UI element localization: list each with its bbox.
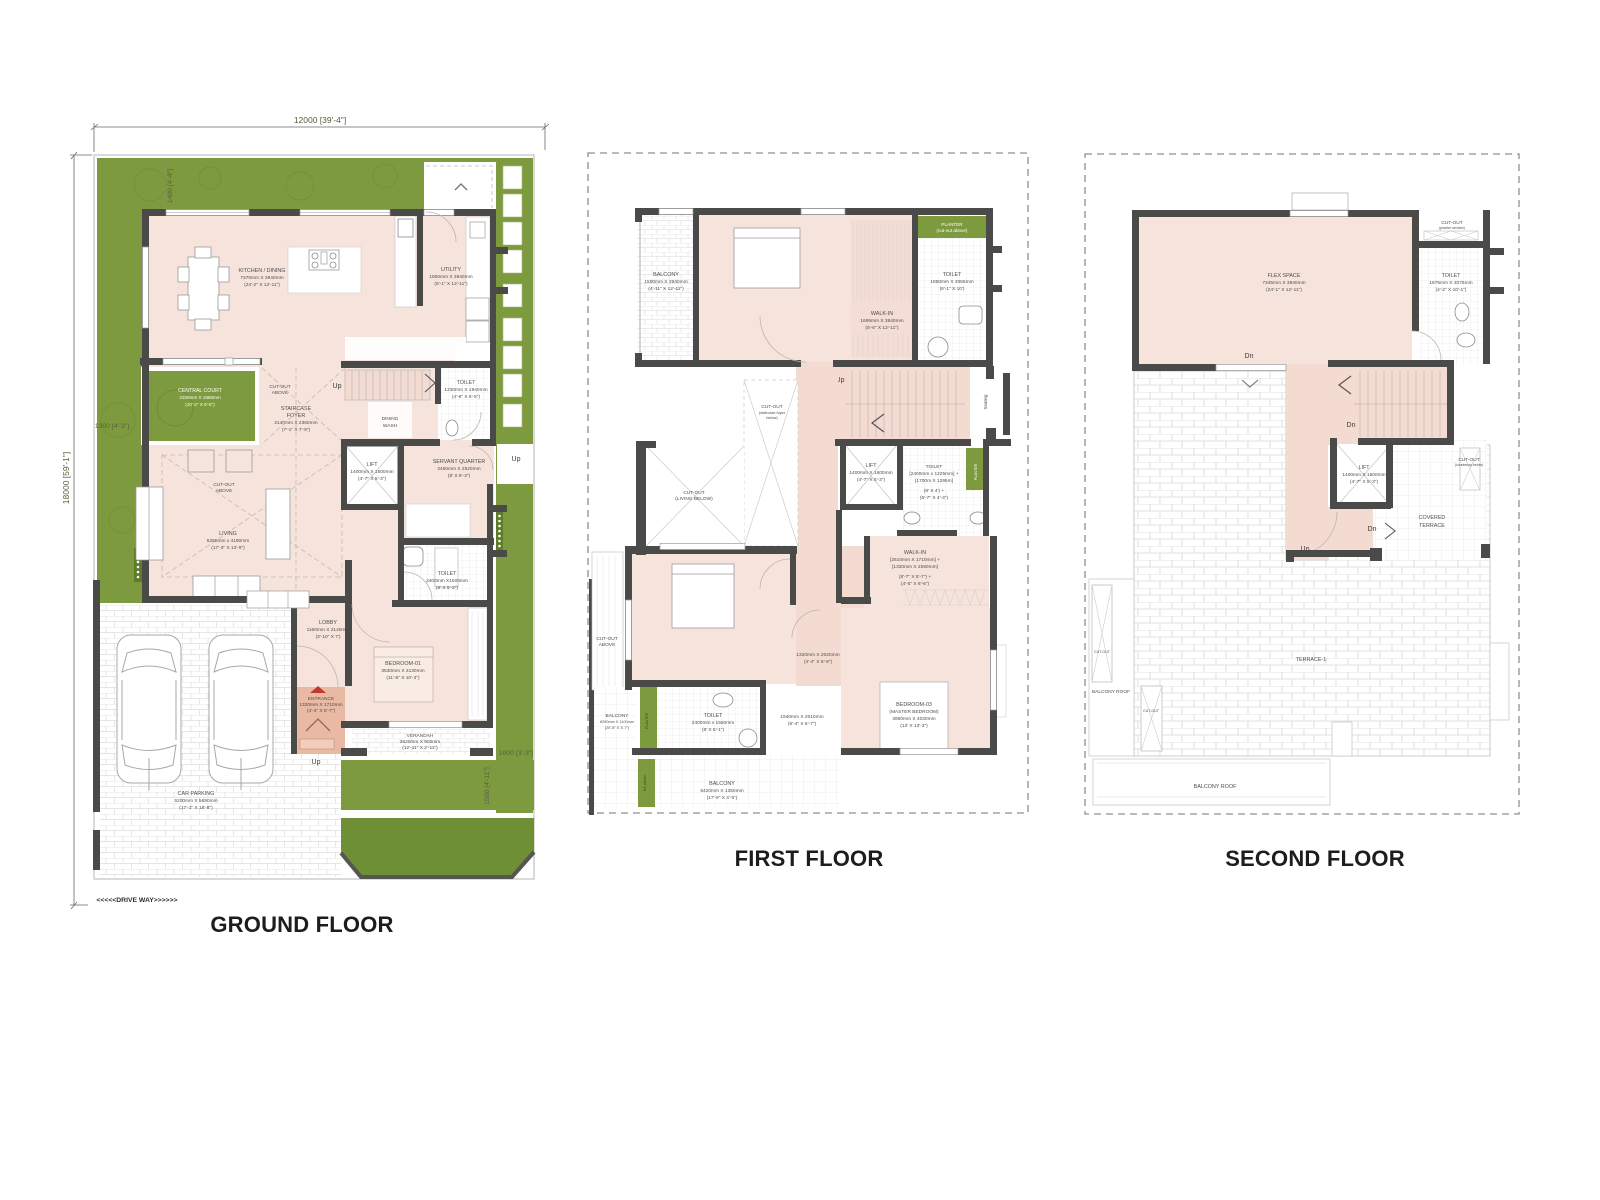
svg-text:1000 [3'-3"]: 1000 [3'-3"] — [499, 750, 533, 757]
svg-text:2400mm X1500mm: 2400mm X1500mm — [426, 578, 468, 584]
svg-text:CENTRAL COURT: CENTRAL COURT — [178, 388, 223, 394]
svg-text:TOILET: TOILET — [926, 464, 943, 470]
svg-text:LIVING: LIVING — [219, 531, 237, 537]
svg-text:2400mm x 1550mm: 2400mm x 1550mm — [692, 720, 734, 726]
svg-text:(24'-2" X 12'-11"): (24'-2" X 12'-11") — [244, 282, 280, 288]
svg-text:1330mm X 1940mm: 1330mm X 1940mm — [444, 387, 487, 393]
svg-text:3920mm X 900mm: 3920mm X 900mm — [400, 739, 441, 745]
svg-text:WALK-IN: WALK-IN — [871, 311, 893, 317]
svg-text:(17'-1" X 18'-8"): (17'-1" X 18'-8") — [179, 805, 213, 811]
svg-text:1400mm X 1600mm: 1400mm X 1600mm — [1342, 472, 1385, 478]
svg-text:(11'-8" X 10'-3"): (11'-8" X 10'-3") — [386, 675, 420, 681]
svg-text:(8' X 5'-2"): (8' X 5'-2") — [436, 585, 459, 591]
svg-text:(6'-4" X 6'-7"): (6'-4" X 6'-7") — [788, 721, 817, 727]
svg-text:7345mm X 3940mm: 7345mm X 3940mm — [1262, 280, 1305, 286]
svg-text:18000 [59'-1"]: 18000 [59'-1"] — [61, 452, 71, 504]
svg-text:(4'-7" X 5'-3"): (4'-7" X 5'-3") — [857, 477, 886, 483]
svg-text:1500 [4'-11"]: 1500 [4'-11"] — [484, 767, 491, 805]
svg-text:(17'-3" X 13'-9"): (17'-3" X 13'-9") — [211, 545, 245, 551]
svg-text:1400mm X 1600mm: 1400mm X 1600mm — [350, 469, 393, 475]
svg-text:7370mm X 3940mm: 7370mm X 3940mm — [240, 275, 283, 281]
svg-text:LIFT: LIFT — [1358, 465, 1370, 471]
svg-text:5200mm X 5690mm: 5200mm X 5690mm — [174, 798, 217, 804]
svg-text:(17'-9" X 4'-5"): (17'-9" X 4'-5") — [707, 795, 738, 801]
svg-text:ABOVE: ABOVE — [272, 390, 289, 396]
svg-text:TOILET: TOILET — [438, 571, 457, 577]
svg-text:BALCONY ROOF: BALCONY ROOF — [1092, 689, 1130, 695]
svg-text:GROUND FLOOR: GROUND FLOOR — [210, 912, 393, 937]
svg-text:Dn: Dn — [1245, 353, 1254, 360]
svg-text:TOILET: TOILET — [943, 272, 962, 278]
svg-text:BEDROOM-03: BEDROOM-03 — [896, 702, 932, 708]
svg-text:SECOND FLOOR: SECOND FLOOR — [1225, 846, 1405, 871]
svg-text:LIFT: LIFT — [865, 463, 877, 469]
svg-text:Up: Up — [512, 456, 521, 463]
svg-text:TOILET: TOILET — [704, 713, 723, 719]
svg-text:(4'-11" X 12'-11"): (4'-11" X 12'-11") — [648, 286, 684, 292]
svg-text:(cut-out above): (cut-out above) — [937, 228, 968, 233]
svg-text:VERANDAH: VERANDAH — [407, 733, 434, 739]
svg-text:[2610mm X 1710mm] +: [2610mm X 1710mm] + — [890, 557, 940, 563]
svg-text:1850mm X 3055mm: 1850mm X 3055mm — [930, 279, 973, 285]
svg-text:1500mm X 3940mm: 1500mm X 3940mm — [644, 279, 687, 285]
svg-text:CUT-OUT: CUT-OUT — [683, 490, 704, 496]
svg-text:(8' X 4') +: (8' X 4') + — [924, 488, 945, 494]
svg-text:below): below) — [766, 416, 778, 420]
svg-text:PLANTER: PLANTER — [645, 712, 649, 729]
svg-text:KITCHEN / DINING: KITCHEN / DINING — [238, 268, 285, 274]
svg-text:(6'-1" X 10'): (6'-1" X 10') — [940, 286, 965, 292]
svg-text:FIRST FLOOR: FIRST FLOOR — [735, 846, 884, 871]
svg-text:(6'-1" X 12'-11"): (6'-1" X 12'-11") — [434, 281, 468, 287]
svg-text:[1700m X 1295m]: [1700m X 1295m] — [915, 478, 953, 484]
svg-text:CUT-OUT: CUT-OUT — [213, 482, 234, 488]
svg-text:3100mm X 1960mm: 3100mm X 1960mm — [179, 395, 221, 400]
svg-text:CUT-OUT: CUT-OUT — [596, 636, 617, 642]
svg-text:[1330mm X 2590mm]: [1330mm X 2590mm] — [892, 564, 938, 570]
svg-text:6290mm X 1100mm: 6290mm X 1100mm — [600, 720, 634, 724]
svg-text:LOBBY: LOBBY — [319, 620, 337, 626]
svg-text:TERRACE-1: TERRACE-1 — [1296, 657, 1327, 663]
svg-text:Dn: Dn — [1368, 526, 1377, 533]
svg-text:12000 [39'-4"]: 12000 [39'-4"] — [294, 115, 346, 125]
svg-text:[2400mm x 1225mm] +: [2400mm x 1225mm] + — [909, 471, 958, 477]
svg-text:(8'-7" X 5'-7") +: (8'-7" X 5'-7") + — [899, 574, 931, 580]
svg-text:1400mm X 1600mm: 1400mm X 1600mm — [849, 470, 892, 476]
svg-text:Seating: Seating — [983, 394, 988, 409]
svg-text:1160mm X 2140mm: 1160mm X 2140mm — [307, 627, 350, 633]
svg-text:(5'-6" X 12'-11"): (5'-6" X 12'-11") — [865, 325, 899, 331]
svg-text:BALCONY ROOF: BALCONY ROOF — [1194, 784, 1237, 790]
svg-text:1875mm X 3075mm: 1875mm X 3075mm — [1429, 280, 1472, 286]
svg-text:(10'-2" X 6'-5"): (10'-2" X 6'-5") — [185, 402, 215, 407]
svg-text:(8' X 8'-3"): (8' X 8'-3") — [448, 473, 471, 479]
svg-text:FLEX SPACE: FLEX SPACE — [1268, 273, 1301, 279]
svg-text:CUT-OUT: CUT-OUT — [1143, 709, 1160, 713]
svg-text:BALCONY: BALCONY — [606, 713, 630, 719]
svg-text:(3'-10" X 7'): (3'-10" X 7') — [316, 634, 341, 640]
svg-text:CAR PARKING: CAR PARKING — [178, 791, 215, 797]
svg-text:(LIVING BELOW): (LIVING BELOW) — [675, 496, 713, 502]
svg-text:ABOVE: ABOVE — [599, 642, 616, 648]
svg-text:PLANTER: PLANTER — [974, 463, 978, 480]
svg-text:(13' X 13'-3"): (13' X 13'-3") — [900, 723, 928, 729]
svg-text:<<<<<DRIVE WAY>>>>>>: <<<<<DRIVE WAY>>>>>> — [96, 897, 177, 904]
svg-text:5260mm x 4190mm: 5260mm x 4190mm — [207, 538, 249, 544]
svg-text:1320mm X 2020mm: 1320mm X 2020mm — [796, 652, 839, 658]
svg-text:DINING: DINING — [382, 416, 399, 422]
svg-text:TERRACE: TERRACE — [1419, 523, 1445, 529]
svg-text:WASH: WASH — [383, 423, 398, 429]
svg-text:5420mm X 1350mm: 5420mm X 1350mm — [700, 788, 743, 794]
svg-text:3530mm X 3130mm: 3530mm X 3130mm — [381, 668, 424, 674]
svg-text:UTILITY: UTILITY — [441, 267, 461, 273]
svg-text:1300 [4'-3"]: 1300 [4'-3"] — [95, 423, 129, 430]
svg-text:CUT-OUT: CUT-OUT — [761, 404, 782, 410]
svg-text:(MASTER BEDROOM): (MASTER BEDROOM) — [889, 709, 939, 715]
svg-text:ENTRANCE: ENTRANCE — [308, 696, 334, 702]
svg-text:ABOVE: ABOVE — [216, 488, 233, 494]
svg-text:BEDROOM-01: BEDROOM-01 — [385, 661, 421, 667]
svg-text:SERVANT QUARTER: SERVANT QUARTER — [433, 459, 486, 465]
svg-text:TOILET: TOILET — [457, 380, 476, 386]
svg-text:CUT-OUT: CUT-OUT — [1094, 650, 1111, 654]
svg-text:PLANTER: PLANTER — [941, 222, 963, 227]
svg-text:2460mm X 2520mm: 2460mm X 2520mm — [437, 466, 480, 472]
svg-text:3960mm X 4030mm: 3960mm X 4030mm — [892, 716, 935, 722]
svg-text:1940mm X 2010mm: 1940mm X 2010mm — [780, 714, 823, 720]
svg-text:(4'-4" X 6'-8"): (4'-4" X 6'-8") — [804, 659, 833, 665]
svg-text:Dn: Dn — [1347, 422, 1356, 429]
svg-text:Up: Up — [333, 383, 342, 390]
svg-text:(staircase foyer: (staircase foyer — [759, 411, 786, 415]
svg-text:COVERED: COVERED — [1419, 515, 1446, 521]
svg-text:Up: Up — [312, 759, 321, 766]
svg-text:(4'-7" X 5'-3"): (4'-7" X 5'-3") — [358, 476, 387, 482]
svg-text:BALCONY: BALCONY — [709, 781, 735, 787]
svg-text:(4'-2" X 10'-1"): (4'-2" X 10'-1") — [1436, 287, 1467, 293]
svg-text:(24'-1" X 12'-11"): (24'-1" X 12'-11") — [1266, 287, 1302, 293]
svg-text:(4'-4" X 5'-7"): (4'-4" X 5'-7") — [307, 708, 336, 714]
svg-text:(12'-11" X 2'-11"): (12'-11" X 2'-11") — [402, 745, 438, 751]
svg-text:(20'-8" X 3'-7"): (20'-8" X 3'-7") — [605, 726, 630, 730]
svg-text:WALK-IN: WALK-IN — [904, 550, 926, 556]
svg-text:(8' X 5'-1"): (8' X 5'-1") — [702, 727, 725, 733]
svg-text:(5'-7" X 4'-3"): (5'-7" X 4'-3") — [920, 495, 949, 501]
svg-text:(4'-6" X 6'-5"): (4'-6" X 6'-5") — [452, 394, 481, 400]
svg-text:MS planter: MS planter — [643, 774, 647, 791]
svg-text:1850mm X 3940mm: 1850mm X 3940mm — [429, 274, 472, 280]
svg-text:TOILET: TOILET — [1442, 273, 1461, 279]
svg-text:1320mm X 1710mm: 1320mm X 1710mm — [299, 702, 342, 708]
svg-text:BALCONY: BALCONY — [653, 272, 679, 278]
svg-text:1400 [4'-8"]: 1400 [4'-8"] — [167, 169, 174, 203]
svg-text:(countertop below): (countertop below) — [1455, 463, 1483, 467]
svg-text:LIFT: LIFT — [366, 462, 378, 468]
svg-text:(planter section): (planter section) — [1439, 226, 1465, 230]
svg-text:(4'-7" X 5'-3"): (4'-7" X 5'-3") — [1350, 479, 1379, 485]
svg-text:1695mm X 3940mm: 1695mm X 3940mm — [860, 318, 903, 324]
svg-text:(4'-5" X 8'-6"): (4'-5" X 8'-6") — [901, 581, 930, 587]
